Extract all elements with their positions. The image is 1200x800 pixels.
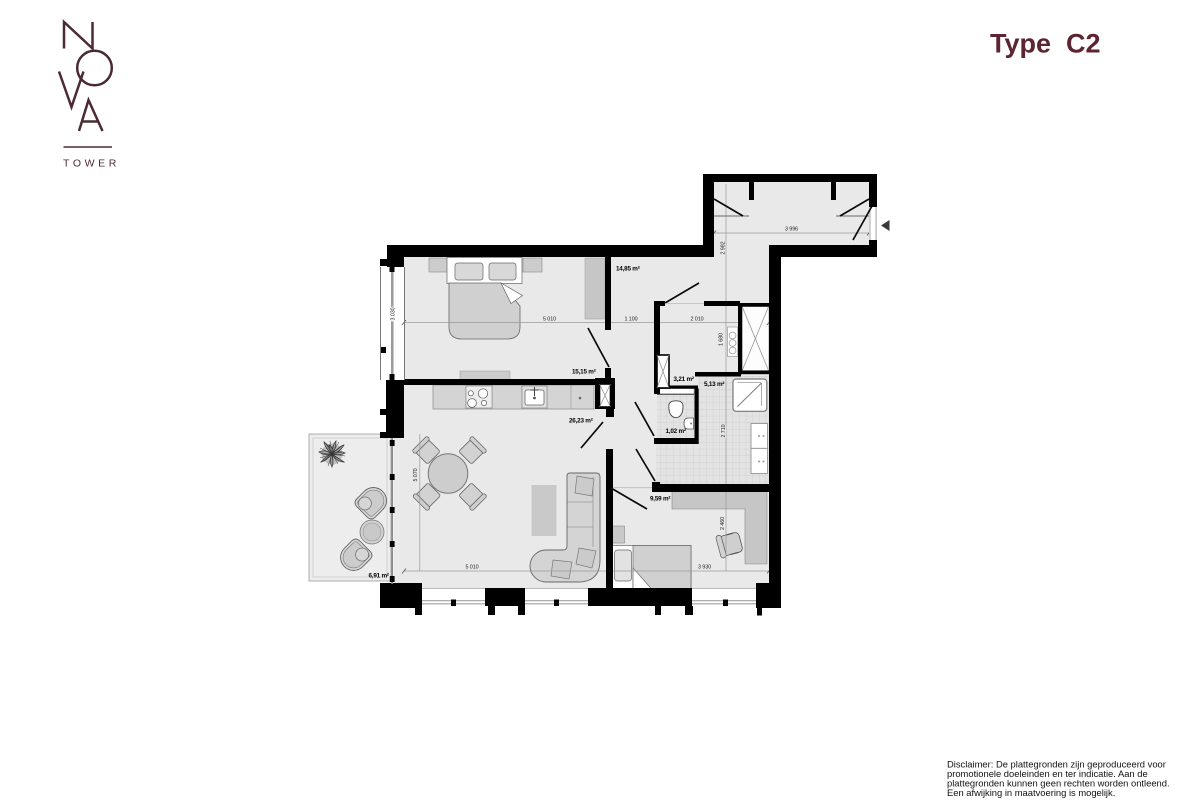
svg-text:15,15 m²: 15,15 m² [572, 369, 596, 376]
svg-text:26,23 m²: 26,23 m² [569, 418, 593, 425]
svg-text:5 010: 5 010 [466, 565, 479, 571]
svg-text:3 996: 3 996 [785, 227, 798, 233]
svg-text:Een afwijking in maatvoering i: Een afwijking in maatvoering is mogelijk… [947, 787, 1115, 798]
svg-text:5 070: 5 070 [413, 468, 419, 481]
svg-text:2 982: 2 982 [721, 241, 727, 254]
svg-text:1 680: 1 680 [719, 333, 725, 346]
svg-text:1 100: 1 100 [625, 317, 638, 323]
svg-text:3 930: 3 930 [698, 565, 711, 571]
svg-text:3 030: 3 030 [391, 307, 397, 320]
svg-text:2 010: 2 010 [691, 317, 704, 323]
svg-text:9,59 m²: 9,59 m² [650, 496, 670, 503]
svg-text:6,91 m²: 6,91 m² [369, 573, 389, 580]
svg-text:2 460: 2 460 [720, 517, 726, 530]
svg-text:14,85 m²: 14,85 m² [616, 266, 640, 273]
svg-text:5 010: 5 010 [543, 317, 556, 323]
svg-text:2 710: 2 710 [721, 424, 727, 437]
svg-text:Type C2: Type C2 [990, 29, 1101, 59]
svg-text:3,21 m²: 3,21 m² [674, 376, 694, 383]
svg-text:TOWER: TOWER [63, 158, 120, 170]
svg-text:5,13 m²: 5,13 m² [704, 381, 724, 388]
svg-text:1,02 m²: 1,02 m² [666, 428, 686, 435]
